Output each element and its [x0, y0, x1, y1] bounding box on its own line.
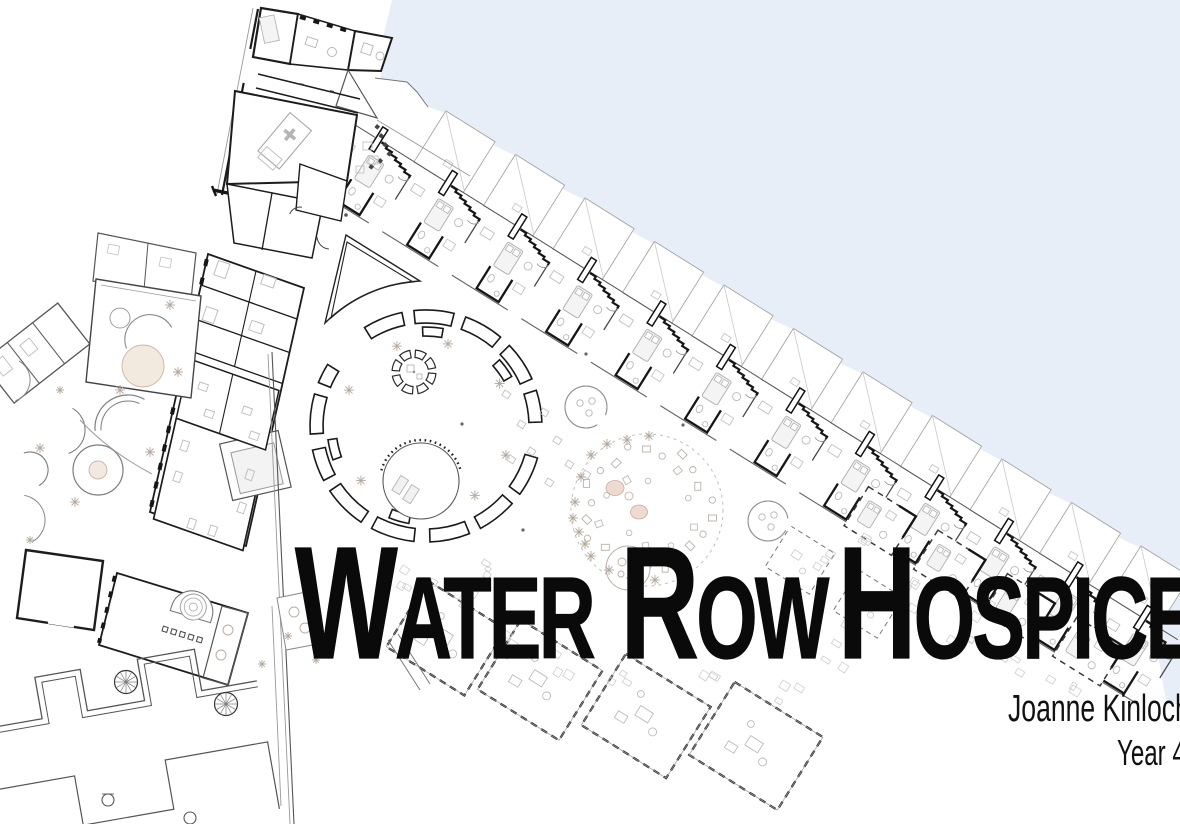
svg-text:Year 4: Year 4	[1117, 733, 1180, 773]
svg-text:WATER ROW HOSPICE: WATER ROW HOSPICE	[295, 513, 1180, 692]
svg-text:Joanne Kinloch: Joanne Kinloch	[1008, 686, 1180, 729]
